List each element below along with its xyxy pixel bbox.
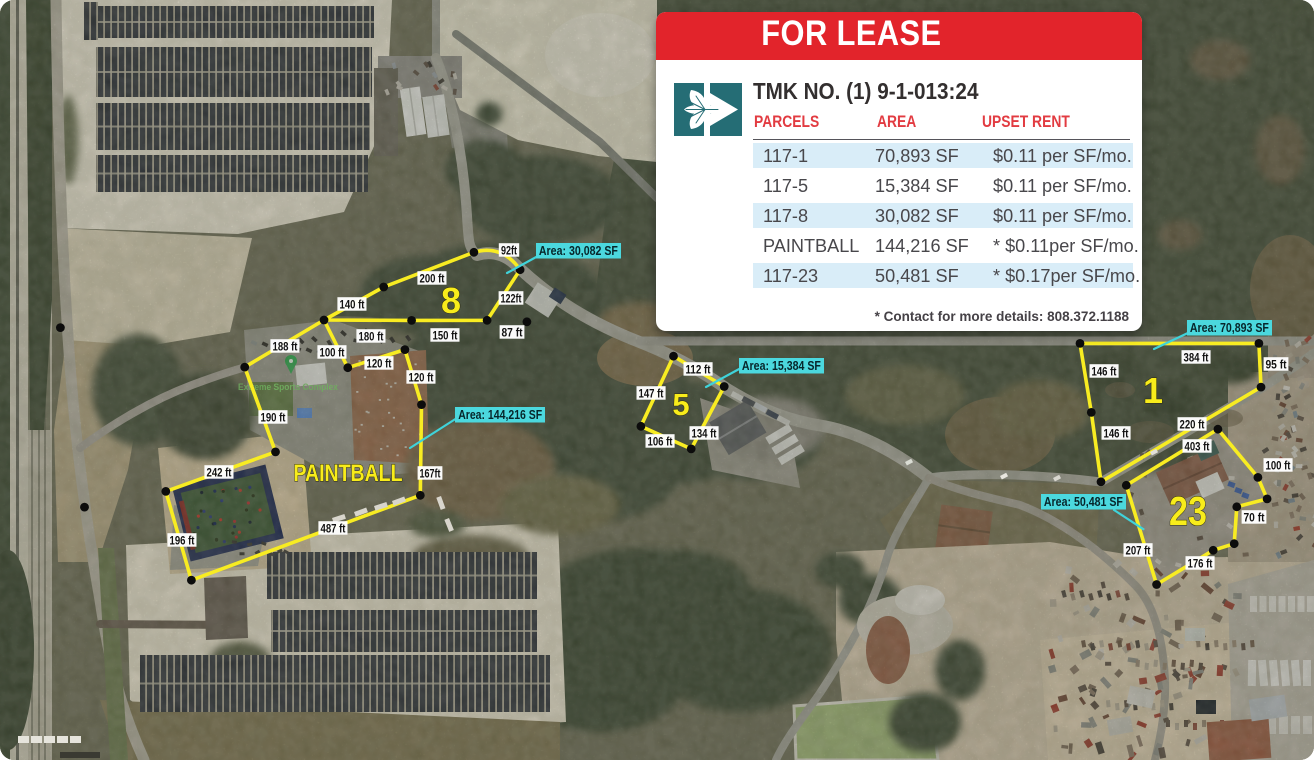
svg-text:Area: 50,481 SF: Area: 50,481 SF	[1044, 495, 1123, 509]
svg-text:100 ft: 100 ft	[1266, 458, 1291, 472]
svg-text:87 ft: 87 ft	[502, 325, 523, 339]
svg-text:8: 8	[441, 280, 461, 321]
svg-text:196 ft: 196 ft	[170, 533, 195, 547]
svg-text:176 ft: 176 ft	[1188, 556, 1213, 570]
svg-text:146 ft: 146 ft	[1104, 426, 1129, 440]
svg-text:122ft: 122ft	[501, 291, 522, 305]
svg-text:146 ft: 146 ft	[1092, 364, 1117, 378]
svg-text:134 ft: 134 ft	[692, 426, 717, 440]
svg-text:147 ft: 147 ft	[639, 386, 664, 400]
svg-text:Area: 30,082 SF: Area: 30,082 SF	[539, 244, 618, 258]
svg-text:188 ft: 188 ft	[273, 339, 298, 353]
svg-text:242 ft: 242 ft	[207, 465, 232, 479]
svg-text:Area: 15,384 SF: Area: 15,384 SF	[742, 359, 821, 373]
svg-text:403 ft: 403 ft	[1185, 439, 1210, 453]
svg-text:106 ft: 106 ft	[648, 434, 673, 448]
svg-text:220 ft: 220 ft	[1180, 417, 1205, 431]
svg-text:487 ft: 487 ft	[321, 521, 346, 535]
svg-text:112 ft: 112 ft	[686, 362, 711, 376]
svg-text:PAINTBALL: PAINTBALL	[294, 460, 403, 487]
svg-text:190 ft: 190 ft	[261, 410, 286, 424]
svg-text:92ft: 92ft	[501, 243, 517, 257]
svg-text:180 ft: 180 ft	[359, 329, 384, 343]
svg-text:1: 1	[1143, 370, 1163, 411]
svg-text:140 ft: 140 ft	[340, 297, 365, 311]
svg-text:23: 23	[1169, 488, 1207, 534]
svg-text:207 ft: 207 ft	[1126, 543, 1151, 557]
svg-text:384 ft: 384 ft	[1184, 350, 1209, 364]
svg-text:120 ft: 120 ft	[409, 370, 434, 384]
svg-text:5: 5	[672, 387, 689, 422]
svg-text:150 ft: 150 ft	[433, 328, 458, 342]
svg-text:167ft: 167ft	[420, 466, 441, 480]
svg-text:100 ft: 100 ft	[320, 345, 345, 359]
svg-text:120 ft: 120 ft	[367, 356, 392, 370]
svg-text:Area: 70,893 SF: Area: 70,893 SF	[1190, 321, 1269, 335]
svg-text:95 ft: 95 ft	[1266, 357, 1287, 371]
svg-text:70 ft: 70 ft	[1244, 510, 1265, 524]
svg-text:Area: 144,216 SF: Area: 144,216 SF	[458, 408, 542, 422]
